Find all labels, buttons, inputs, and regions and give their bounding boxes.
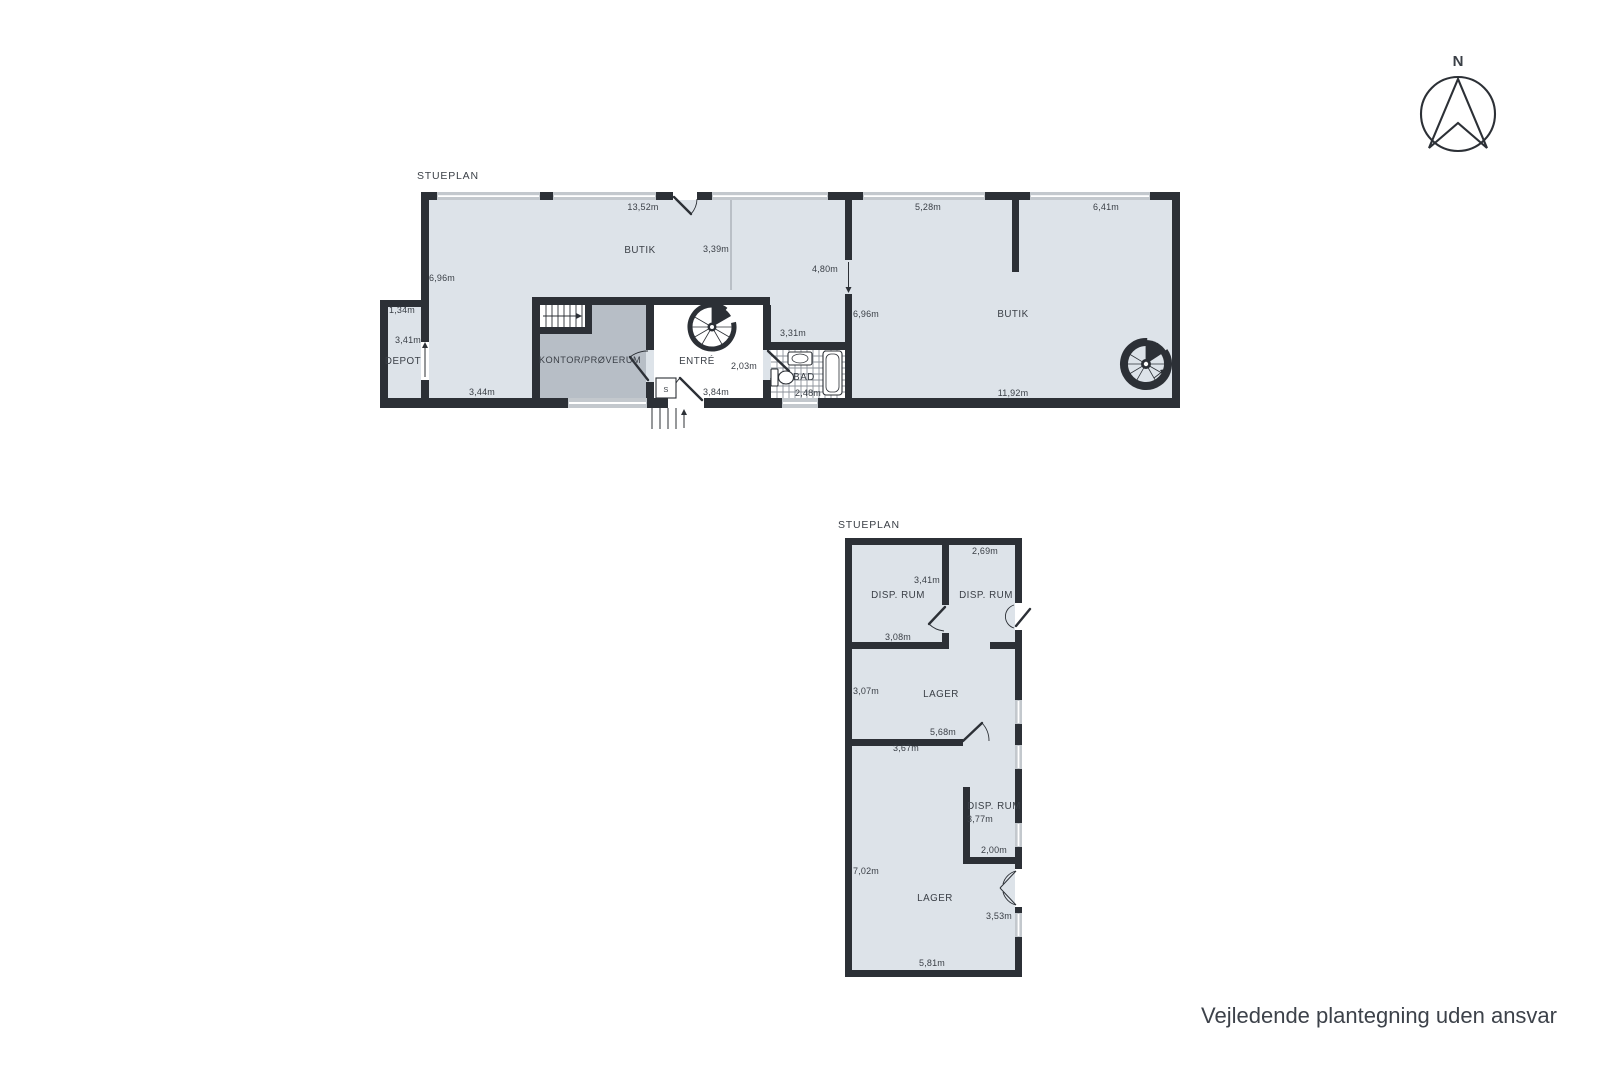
room-label-kontor: KONTOR/PRØVERUM (539, 355, 641, 365)
dim-left-height: 6,96m (429, 273, 455, 283)
dim-disp-left-height: 3,41m (914, 575, 940, 585)
dim-bad-width: 2,48m (795, 388, 821, 398)
disclaimer-text: Vejledende plantegning uden ansvar (1201, 1003, 1557, 1028)
room-label-butik-right: BUTIK (997, 309, 1028, 320)
bathtub-icon (823, 351, 842, 395)
dim-butik-right-height: 6,96m (853, 309, 879, 319)
butik-divider-lower (845, 294, 852, 408)
dim-butik-depth: 3,39m (703, 244, 729, 254)
dim-lager-lower-height: 7,02m (853, 866, 879, 876)
disp-lower-left-wall (963, 787, 970, 864)
dim-opening: 4,80m (812, 264, 838, 274)
dim-lager-upper-height: 3,07m (853, 686, 879, 696)
depot-right-wall-lower (421, 380, 429, 398)
disp-right-bottom-stub (990, 642, 1022, 649)
right-wall (1172, 192, 1180, 408)
lower-floor-plan: STUEPLAN (838, 519, 1030, 977)
shaft-label: S (663, 385, 668, 394)
lower-bottom-wall (845, 970, 1022, 977)
north-label: N (1453, 53, 1464, 70)
room-label-butik-left: BUTIK (624, 245, 655, 256)
room-label-depot: DEPOT (385, 356, 421, 367)
dim-depot-width: 1,34m (389, 305, 415, 315)
room-label-lager-upper: LAGER (923, 689, 959, 700)
dim-bad-top: 3,31m (780, 328, 806, 338)
sink-icon (788, 352, 812, 365)
room-label-lager-lower: LAGER (917, 893, 953, 904)
room-label-bad: BAD (793, 372, 815, 383)
dim-bad-door: 2,03m (731, 361, 757, 371)
dim-bottom-left: 3,44m (469, 387, 495, 397)
bottom-wall (380, 398, 1180, 408)
entre-exterior-door-gap (668, 398, 704, 408)
disp-lower-bottom-wall (963, 857, 1022, 864)
upper-floor-plan: STUEPLAN (380, 170, 1180, 429)
lower-floor (852, 545, 1015, 970)
toilet-icon (771, 369, 794, 386)
bad-top-wall (763, 342, 852, 350)
shaft-box: S (656, 378, 676, 398)
room-label-disp-top-right: DISP. RUM (959, 590, 1013, 601)
dim-top-width: 13,52m (627, 202, 658, 212)
kontor-entre-wall-upper (646, 305, 654, 350)
lower-plan-title: STUEPLAN (838, 519, 900, 531)
lower-top-wall (845, 538, 1022, 545)
disp-left-bottom-wall (845, 642, 949, 649)
depot-left-wall (380, 300, 388, 408)
dim-top-mid: 5,28m (915, 202, 941, 212)
compass: N (1421, 53, 1495, 151)
dim-disp-lower-width: 2,00m (981, 845, 1007, 855)
dim-bottom-right: 11,92m (998, 388, 1029, 398)
room-label-disp-lower: DISP. RUM (967, 801, 1021, 812)
left-wall (421, 192, 429, 307)
dim-top-right-width: 2,69m (972, 546, 998, 556)
exterior-steps-icon (652, 408, 687, 429)
entre-bad-wall-lower (763, 380, 771, 398)
butik-right-stub-wall (1012, 192, 1019, 272)
depot-right-wall-upper (421, 307, 429, 342)
dim-lager-upper-width: 5,68m (930, 727, 956, 737)
butik-divider-upper (845, 192, 852, 260)
room-label-disp-top-left: DISP. RUM (871, 590, 925, 601)
floor-plan-drawing: STUEPLAN (0, 0, 1620, 1080)
kontor-left-wall (532, 297, 540, 398)
lager-double-door-gap (1015, 869, 1022, 907)
dim-disp-lower-height: 3,77m (967, 814, 993, 824)
kontor-entre-top-wall (532, 297, 770, 305)
disp-divider-wall (942, 538, 949, 605)
dim-disp-left-width: 3,08m (885, 632, 911, 642)
floor-plan-page: STUEPLAN (0, 0, 1620, 1080)
dim-lager-lower-width: 5,81m (919, 958, 945, 968)
upper-plan-title: STUEPLAN (417, 170, 479, 182)
dim-depot-height: 3,41m (395, 335, 421, 345)
dim-lager-lower-right: 3,53m (986, 911, 1012, 921)
dim-entre-width: 3,84m (703, 387, 729, 397)
depot-floor (388, 307, 421, 398)
lower-left-wall (845, 538, 852, 977)
kontor-entre-wall-lower (646, 382, 654, 398)
compass-needle-icon (1429, 79, 1487, 148)
dim-top-right: 6,41m (1093, 202, 1119, 212)
room-label-entre: ENTRÉ (679, 356, 715, 367)
dim-lager-upper-inner: 3,67m (893, 743, 919, 753)
